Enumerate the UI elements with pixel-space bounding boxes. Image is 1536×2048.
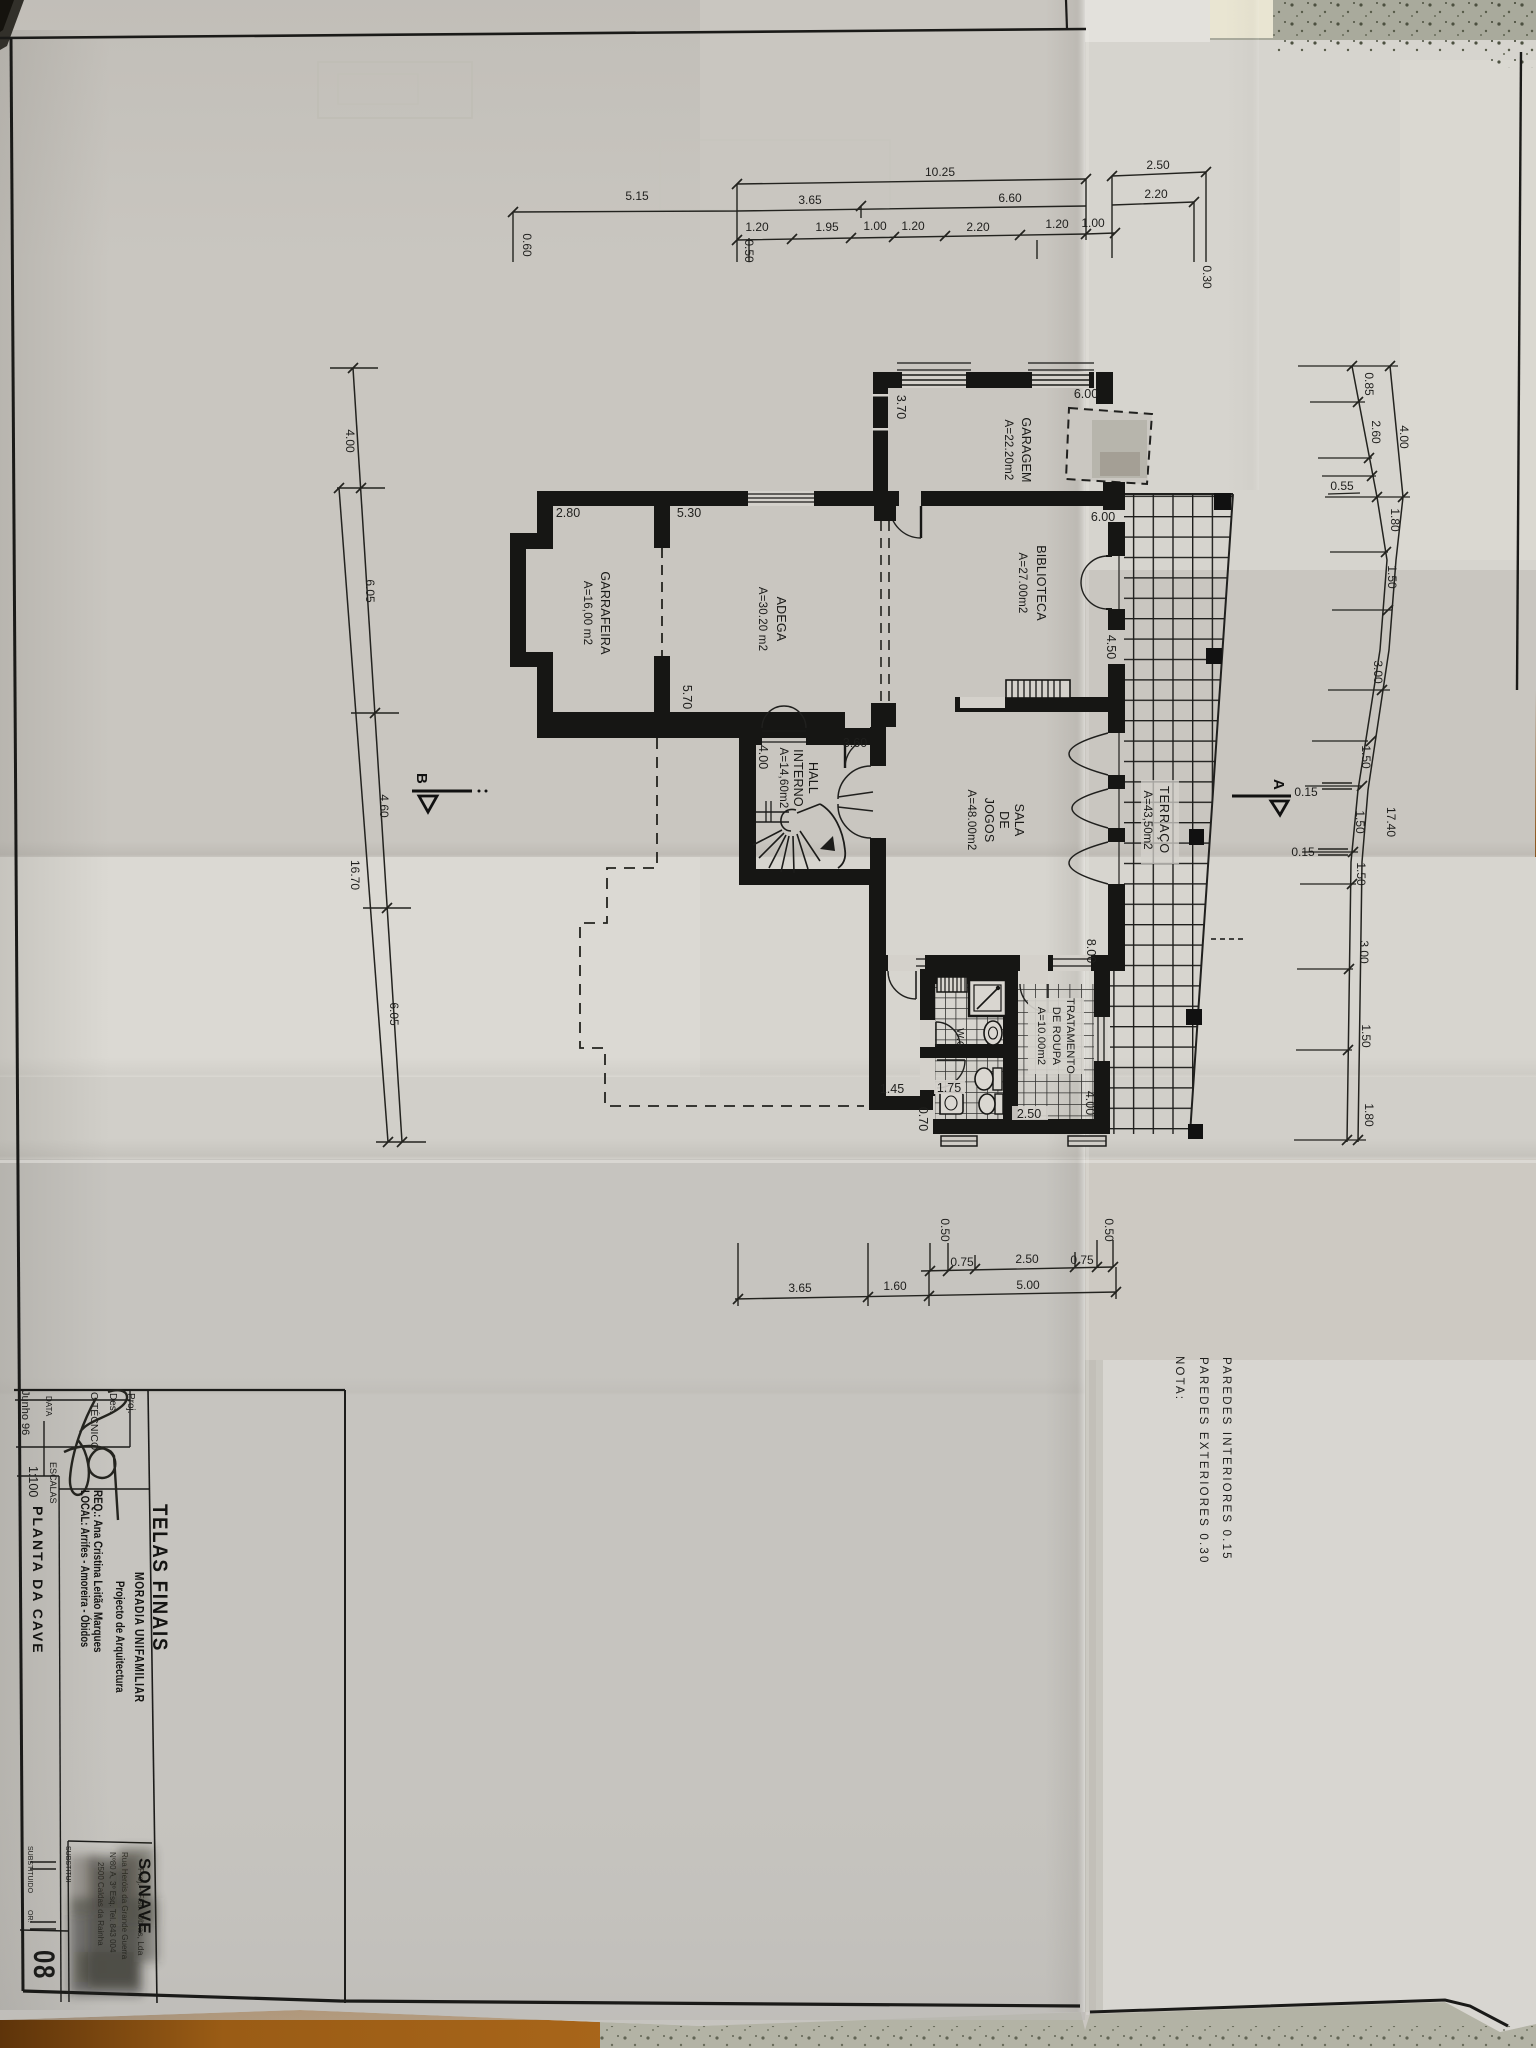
svg-text:1.45: 1.45: [880, 1082, 904, 1096]
svg-text:PAREDES EXTERIORES 0.30: PAREDES EXTERIORES 0.30: [1197, 1357, 1209, 1565]
svg-text:DE: DE: [997, 811, 1011, 829]
svg-text:6.60: 6.60: [998, 191, 1022, 205]
svg-text:3.65: 3.65: [798, 193, 822, 207]
svg-text:2.50: 2.50: [1146, 158, 1170, 172]
svg-text:B: B: [413, 773, 430, 784]
svg-text:HALL: HALL: [806, 762, 820, 794]
svg-text:4.50: 4.50: [1104, 635, 1118, 659]
svg-text:A=16,00 m2: A=16,00 m2: [581, 581, 593, 645]
svg-text:1.60: 1.60: [883, 1279, 907, 1293]
svg-text:SALA: SALA: [1012, 804, 1026, 837]
svg-text:5.00: 5.00: [1016, 1278, 1040, 1292]
svg-text:PAREDES INTERIORES 0.15: PAREDES INTERIORES 0.15: [1220, 1357, 1232, 1561]
svg-text:5.30: 5.30: [677, 506, 701, 520]
svg-text:Projecto de Arquitectura: Projecto de Arquitectura: [113, 1581, 126, 1693]
svg-text:GARAGEM: GARAGEM: [1019, 417, 1033, 482]
svg-text:A=27.00m2: A=27.00m2: [1016, 553, 1028, 614]
svg-text:5.15: 5.15: [625, 189, 649, 203]
svg-text:6.00: 6.00: [1074, 387, 1098, 401]
svg-text:SONAVE: SONAVE: [135, 1858, 154, 1935]
svg-text:1.00: 1.00: [863, 219, 887, 233]
svg-text:6.05: 6.05: [387, 1002, 401, 1026]
svg-text:DE ROUPA: DE ROUPA: [1050, 1007, 1062, 1066]
svg-text:6.00: 6.00: [1091, 510, 1115, 524]
svg-text:1.50: 1.50: [1353, 810, 1367, 834]
svg-text:0.85: 0.85: [1362, 372, 1376, 396]
svg-text:1:100: 1:100: [26, 1466, 40, 1497]
svg-text:1.75: 1.75: [937, 1081, 961, 1095]
svg-text:1.50: 1.50: [1359, 1024, 1373, 1048]
svg-text:BIBLIOTECA: BIBLIOTECA: [1034, 545, 1048, 621]
svg-text:1.80: 1.80: [1362, 1103, 1376, 1127]
svg-text:3.65: 3.65: [788, 1281, 812, 1295]
svg-text:0.15: 0.15: [1294, 785, 1318, 799]
svg-text:10.25: 10.25: [925, 165, 955, 179]
svg-text:A=10.00m2: A=10.00m2: [1035, 1007, 1047, 1065]
svg-text:1.80: 1.80: [1388, 508, 1402, 532]
svg-text:A=43,50m2: A=43,50m2: [1141, 790, 1153, 849]
svg-text:Junho 96: Junho 96: [19, 1390, 31, 1435]
svg-text:0.50: 0.50: [1102, 1218, 1116, 1242]
svg-text:GARRAFEIRA: GARRAFEIRA: [598, 571, 612, 655]
svg-text:TELAS FINAIS: TELAS FINAIS: [148, 1504, 171, 1652]
svg-text:4.00: 4.00: [1397, 425, 1411, 449]
svg-text:OR:: OR:: [26, 1910, 33, 1923]
svg-text:8.00: 8.00: [1084, 939, 1098, 963]
svg-text:0.60: 0.60: [520, 233, 534, 257]
svg-text:A=14,60m2: A=14,60m2: [777, 748, 789, 809]
svg-text:SUBSTITUIDO: SUBSTITUIDO: [26, 1846, 33, 1894]
svg-text:2.60: 2.60: [1369, 420, 1383, 444]
svg-text:JOGOS: JOGOS: [982, 798, 996, 843]
svg-text:A=48.00m2: A=48.00m2: [965, 790, 977, 851]
svg-text:1.20: 1.20: [1045, 217, 1069, 231]
svg-text:LOCAL: Arrifes - Amoreira - Ób: LOCAL: Arrifes - Amoreira - Óbidos: [78, 1490, 92, 1647]
svg-text:SUBSTITUI: SUBSTITUI: [64, 1846, 71, 1883]
svg-text:0.55: 0.55: [1330, 479, 1354, 493]
svg-text:3.60: 3.60: [843, 736, 867, 750]
svg-text:2.50: 2.50: [1017, 1107, 1041, 1121]
svg-text:16.70: 16.70: [348, 860, 362, 890]
svg-text:1.20: 1.20: [745, 220, 769, 234]
svg-text:PLANTA DA CAVE: PLANTA DA CAVE: [30, 1506, 46, 1655]
svg-text:A=22.20m2: A=22.20m2: [1002, 420, 1014, 481]
svg-text:DATA: DATA: [44, 1396, 53, 1417]
svg-text:4.00: 4.00: [756, 745, 770, 769]
svg-text:2.80: 2.80: [556, 506, 580, 520]
svg-text:TRATAMENTO: TRATAMENTO: [1064, 998, 1076, 1074]
svg-text:2.20: 2.20: [966, 220, 990, 234]
svg-text:0.50: 0.50: [742, 239, 756, 263]
svg-text:4.00: 4.00: [1083, 1091, 1097, 1115]
svg-text:3.00: 3.00: [1357, 940, 1371, 964]
svg-text:5.70: 5.70: [680, 685, 694, 709]
svg-text:A: A: [1270, 779, 1287, 790]
svg-text:0.50: 0.50: [938, 1218, 952, 1242]
svg-text:MORADIA UNIFAMILIAR: MORADIA UNIFAMILIAR: [132, 1572, 146, 1703]
svg-text:1.50: 1.50: [1359, 745, 1373, 769]
svg-text:TERRAÇO: TERRAÇO: [1157, 786, 1171, 854]
svg-text:3.70: 3.70: [894, 395, 908, 419]
svg-text:A=30.20 m2: A=30.20 m2: [756, 587, 768, 651]
svg-text:17.40: 17.40: [1384, 807, 1398, 837]
svg-text:REQ.: Ana Cristina Leitão Marq: REQ.: Ana Cristina Leitão Marques: [91, 1490, 104, 1653]
svg-text:0.75: 0.75: [950, 1255, 974, 1269]
svg-text:6.05: 6.05: [363, 579, 377, 603]
svg-text:3.00: 3.00: [1371, 660, 1385, 684]
svg-text:INTERNO: INTERNO: [791, 749, 805, 807]
svg-text:1.20: 1.20: [901, 219, 925, 233]
svg-text:0.15: 0.15: [1291, 845, 1315, 859]
svg-text:W.C.: W.C.: [954, 1028, 966, 1052]
svg-text:0.70: 0.70: [916, 1107, 930, 1131]
svg-text:08: 08: [27, 1950, 61, 1980]
svg-text:4.00: 4.00: [343, 429, 357, 453]
svg-text:1.50: 1.50: [1385, 565, 1399, 589]
svg-text:ADEGA: ADEGA: [774, 597, 788, 642]
svg-text:ESCALAS: ESCALAS: [48, 1462, 58, 1504]
svg-text:4.60: 4.60: [377, 794, 391, 818]
svg-text:0.75: 0.75: [1070, 1253, 1094, 1267]
svg-text:2.50: 2.50: [1015, 1252, 1039, 1266]
svg-text:1.95: 1.95: [815, 220, 839, 234]
svg-text:1.00: 1.00: [1081, 216, 1105, 230]
svg-text:2.20: 2.20: [1144, 187, 1168, 201]
svg-text:1.50: 1.50: [1354, 862, 1368, 886]
svg-text:NOTA:: NOTA:: [1173, 1356, 1185, 1401]
svg-text:0.30: 0.30: [1200, 265, 1214, 289]
